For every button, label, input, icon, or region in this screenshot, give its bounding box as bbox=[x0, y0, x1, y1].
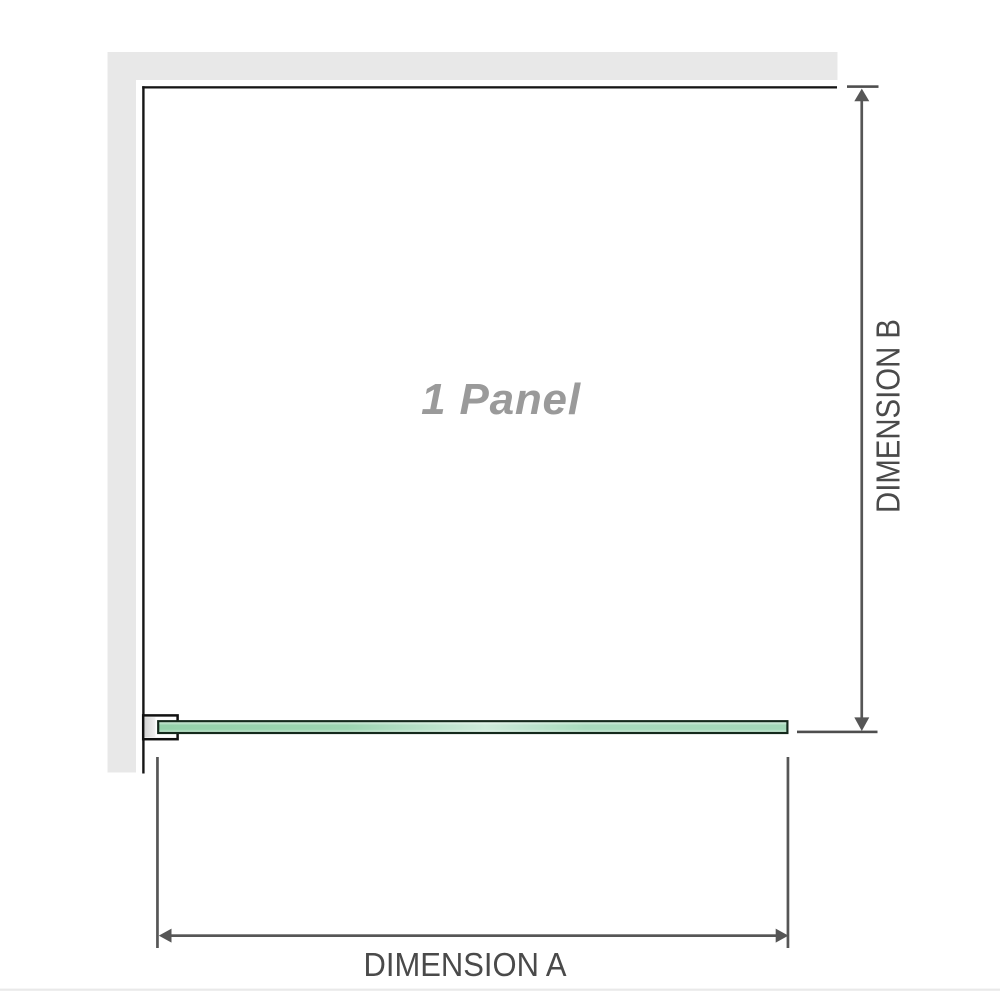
svg-text:DIMENSION B: DIMENSION B bbox=[870, 319, 907, 513]
svg-text:1 Panel: 1 Panel bbox=[421, 375, 581, 424]
svg-text:DIMENSION A: DIMENSION A bbox=[364, 946, 567, 983]
